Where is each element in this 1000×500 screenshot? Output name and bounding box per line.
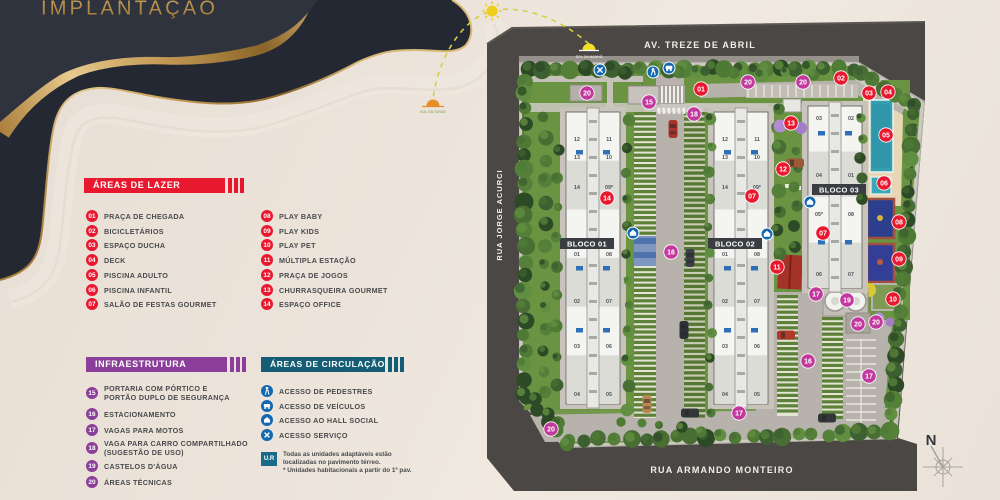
svg-text:14: 14 (574, 185, 580, 191)
svg-text:01: 01 (697, 87, 705, 94)
svg-text:10: 10 (606, 155, 612, 161)
svg-text:06: 06 (606, 344, 612, 350)
svg-text:04: 04 (574, 392, 580, 398)
svg-text:06: 06 (816, 272, 822, 278)
svg-text:01: 01 (848, 173, 854, 179)
svg-text:05: 05 (606, 392, 612, 398)
svg-text:14: 14 (722, 185, 728, 191)
svg-text:07: 07 (819, 231, 827, 238)
svg-text:08: 08 (606, 252, 612, 258)
svg-text:20: 20 (854, 322, 862, 329)
svg-text:BLOCO 01: BLOCO 01 (567, 240, 607, 249)
svg-text:12: 12 (722, 137, 728, 143)
svg-text:03: 03 (865, 91, 873, 98)
svg-text:01: 01 (574, 252, 580, 258)
svg-text:11: 11 (754, 137, 760, 143)
svg-text:20: 20 (799, 80, 807, 87)
svg-text:03: 03 (722, 344, 728, 350)
svg-text:16: 16 (667, 250, 675, 257)
svg-text:07: 07 (754, 299, 760, 305)
svg-text:08: 08 (848, 212, 854, 218)
svg-text:01: 01 (722, 252, 728, 258)
svg-text:12: 12 (779, 167, 787, 174)
svg-text:20: 20 (872, 320, 880, 327)
svg-text:20: 20 (547, 427, 555, 434)
svg-text:17: 17 (812, 292, 820, 299)
svg-text:14: 14 (603, 196, 611, 203)
svg-text:09*: 09* (605, 185, 614, 191)
svg-text:07: 07 (606, 299, 612, 305)
svg-text:BLOCO 03: BLOCO 03 (819, 186, 859, 195)
svg-text:06: 06 (880, 181, 888, 188)
svg-text:19: 19 (843, 298, 851, 305)
svg-text:02: 02 (574, 299, 580, 305)
svg-text:RUA ARMANDO MONTEIRO: RUA ARMANDO MONTEIRO (650, 465, 793, 475)
svg-text:05: 05 (754, 392, 760, 398)
svg-text:06: 06 (754, 344, 760, 350)
svg-text:RUA JORGE ACURCI: RUA JORGE ACURCI (495, 169, 504, 260)
svg-text:07: 07 (848, 272, 854, 278)
svg-text:12: 12 (574, 137, 580, 143)
svg-text:15: 15 (645, 100, 653, 107)
svg-text:SOL DA MANHÃ: SOL DA MANHÃ (576, 54, 603, 59)
svg-text:03: 03 (574, 344, 580, 350)
svg-text:17: 17 (865, 374, 873, 381)
svg-text:05: 05 (882, 133, 890, 140)
svg-text:08: 08 (895, 220, 903, 227)
svg-text:02: 02 (848, 116, 854, 122)
svg-text:20: 20 (744, 80, 752, 87)
svg-text:13: 13 (574, 155, 580, 161)
svg-text:04: 04 (884, 90, 892, 97)
svg-text:13: 13 (787, 121, 795, 128)
svg-text:N: N (926, 432, 937, 449)
svg-text:03: 03 (816, 116, 822, 122)
svg-text:11: 11 (773, 265, 781, 272)
svg-text:08: 08 (754, 252, 760, 258)
svg-text:BLOCO 02: BLOCO 02 (715, 240, 755, 249)
svg-text:07: 07 (748, 194, 756, 201)
svg-text:10: 10 (889, 297, 897, 304)
svg-text:SOL DA TARDE: SOL DA TARDE (420, 110, 446, 114)
svg-text:02: 02 (837, 76, 845, 83)
svg-text:02: 02 (722, 299, 728, 305)
svg-text:11: 11 (606, 137, 612, 143)
svg-text:17: 17 (735, 411, 743, 418)
svg-text:09: 09 (895, 257, 903, 264)
svg-text:05*: 05* (815, 212, 824, 218)
svg-text:10: 10 (754, 155, 760, 161)
svg-text:04: 04 (816, 173, 822, 179)
svg-text:IMPLANTAÇÃO: IMPLANTAÇÃO (41, 0, 218, 20)
svg-text:04: 04 (722, 392, 728, 398)
svg-text:13: 13 (722, 155, 728, 161)
svg-text:20: 20 (583, 91, 591, 98)
svg-text:18: 18 (690, 112, 698, 119)
svg-text:AV. TREZE DE ABRIL: AV. TREZE DE ABRIL (644, 40, 756, 50)
svg-text:16: 16 (804, 359, 812, 366)
